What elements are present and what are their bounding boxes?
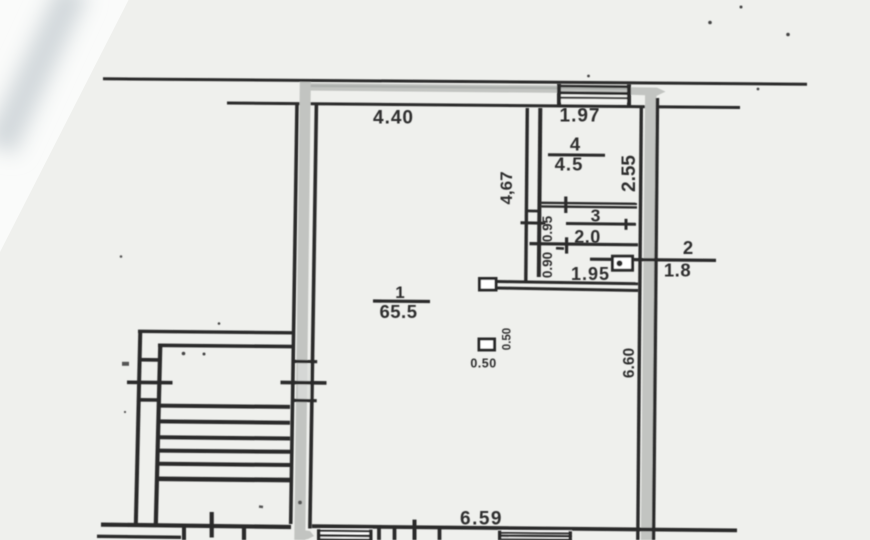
svg-text:2: 2 xyxy=(683,237,693,258)
svg-text:0.50: 0.50 xyxy=(502,328,514,350)
svg-text:4.5: 4.5 xyxy=(555,154,584,175)
svg-text:65.5: 65.5 xyxy=(379,301,417,322)
svg-text:0.50: 0.50 xyxy=(470,357,496,371)
svg-text:4.40: 4.40 xyxy=(373,108,414,129)
svg-text:4: 4 xyxy=(570,134,581,155)
svg-text:6.60: 6.60 xyxy=(621,348,638,378)
svg-text:0.90: 0.90 xyxy=(540,252,555,278)
svg-text:1.8: 1.8 xyxy=(664,260,691,281)
svg-text:6.59: 6.59 xyxy=(460,509,503,530)
svg-text:2.0: 2.0 xyxy=(574,227,601,247)
svg-text:3: 3 xyxy=(591,206,601,226)
svg-text:1.97: 1.97 xyxy=(560,106,601,127)
svg-text:1: 1 xyxy=(395,283,404,302)
svg-text:2.55: 2.55 xyxy=(619,155,640,192)
svg-text:1.95: 1.95 xyxy=(571,264,610,284)
svg-text:4,67: 4,67 xyxy=(497,171,516,204)
svg-text:0.95: 0.95 xyxy=(540,215,555,242)
